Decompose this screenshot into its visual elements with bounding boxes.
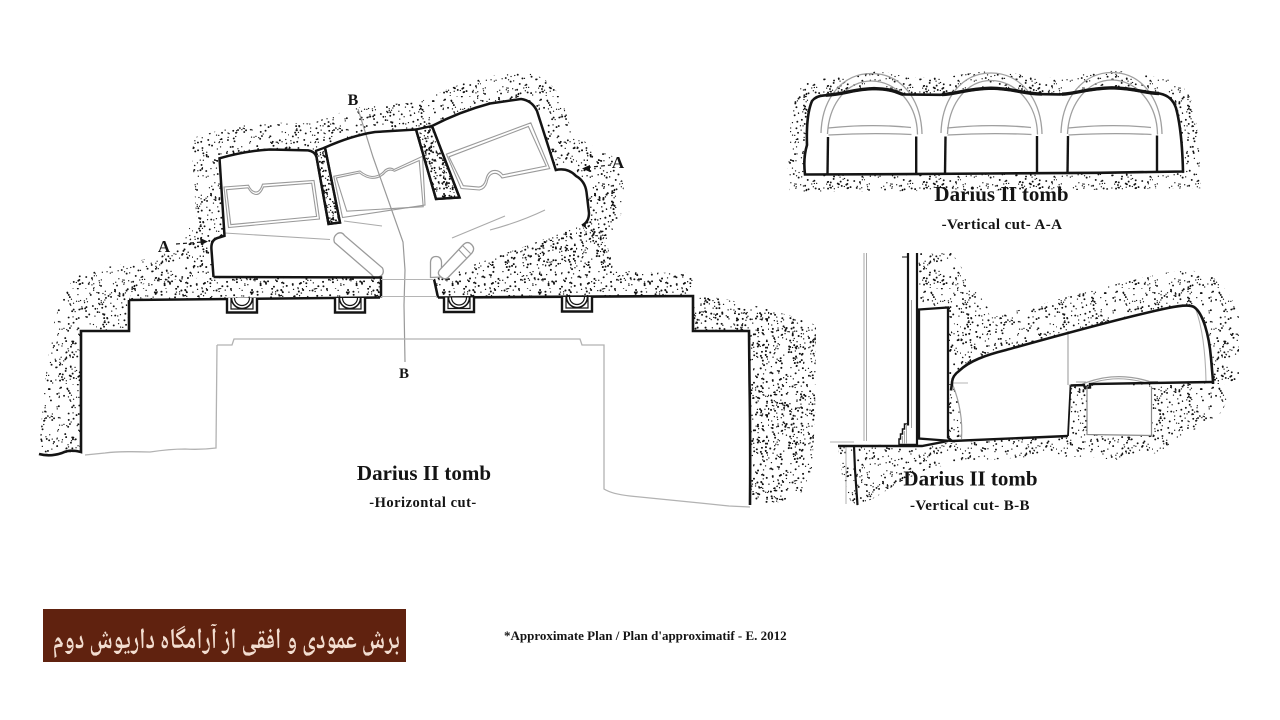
svg-text:-Vertical cut- A-A: -Vertical cut- A-A xyxy=(942,217,1063,233)
svg-text:Darius II tomb: Darius II tomb xyxy=(903,467,1037,491)
svg-text:Darius II tomb: Darius II tomb xyxy=(934,182,1068,206)
svg-text:B: B xyxy=(399,366,409,382)
svg-text:A: A xyxy=(158,237,171,256)
svg-text:Darius II tomb: Darius II tomb xyxy=(357,461,491,485)
svg-text:A: A xyxy=(612,153,625,172)
svg-text:*Approximate Plan / Plan d'app: *Approximate Plan / Plan d'approximatif … xyxy=(504,628,787,643)
svg-text:B: B xyxy=(348,92,359,109)
svg-text:-Vertical cut- B-B: -Vertical cut- B-B xyxy=(910,498,1030,514)
svg-text:-Horizontal cut-: -Horizontal cut- xyxy=(369,495,476,511)
